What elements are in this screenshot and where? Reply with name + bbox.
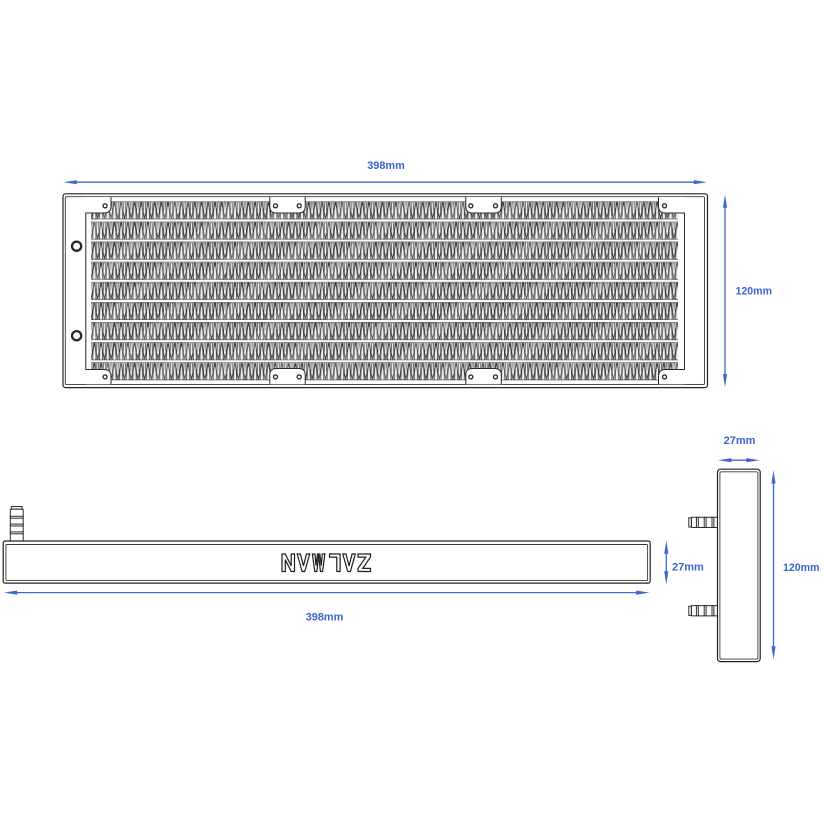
svg-text:398mm: 398mm <box>306 612 344 624</box>
svg-text:120mm: 120mm <box>783 562 820 574</box>
svg-text:27mm: 27mm <box>724 435 756 447</box>
svg-text:398mm: 398mm <box>367 160 405 172</box>
svg-text:27mm: 27mm <box>672 562 704 574</box>
svg-text:120mm: 120mm <box>736 286 773 298</box>
